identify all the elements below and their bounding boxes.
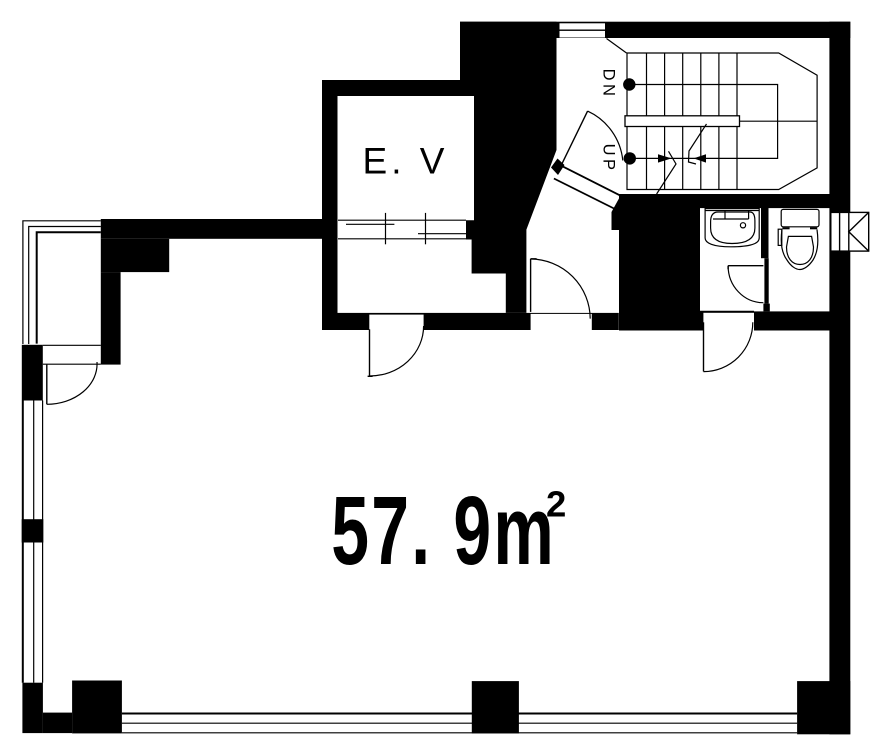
- svg-text:57. 9m: 57. 9m: [331, 476, 556, 585]
- svg-text:2: 2: [546, 484, 566, 525]
- svg-text:DN: DN: [600, 69, 618, 100]
- svg-text:UP: UP: [600, 144, 618, 174]
- svg-text:E. V: E. V: [363, 141, 449, 182]
